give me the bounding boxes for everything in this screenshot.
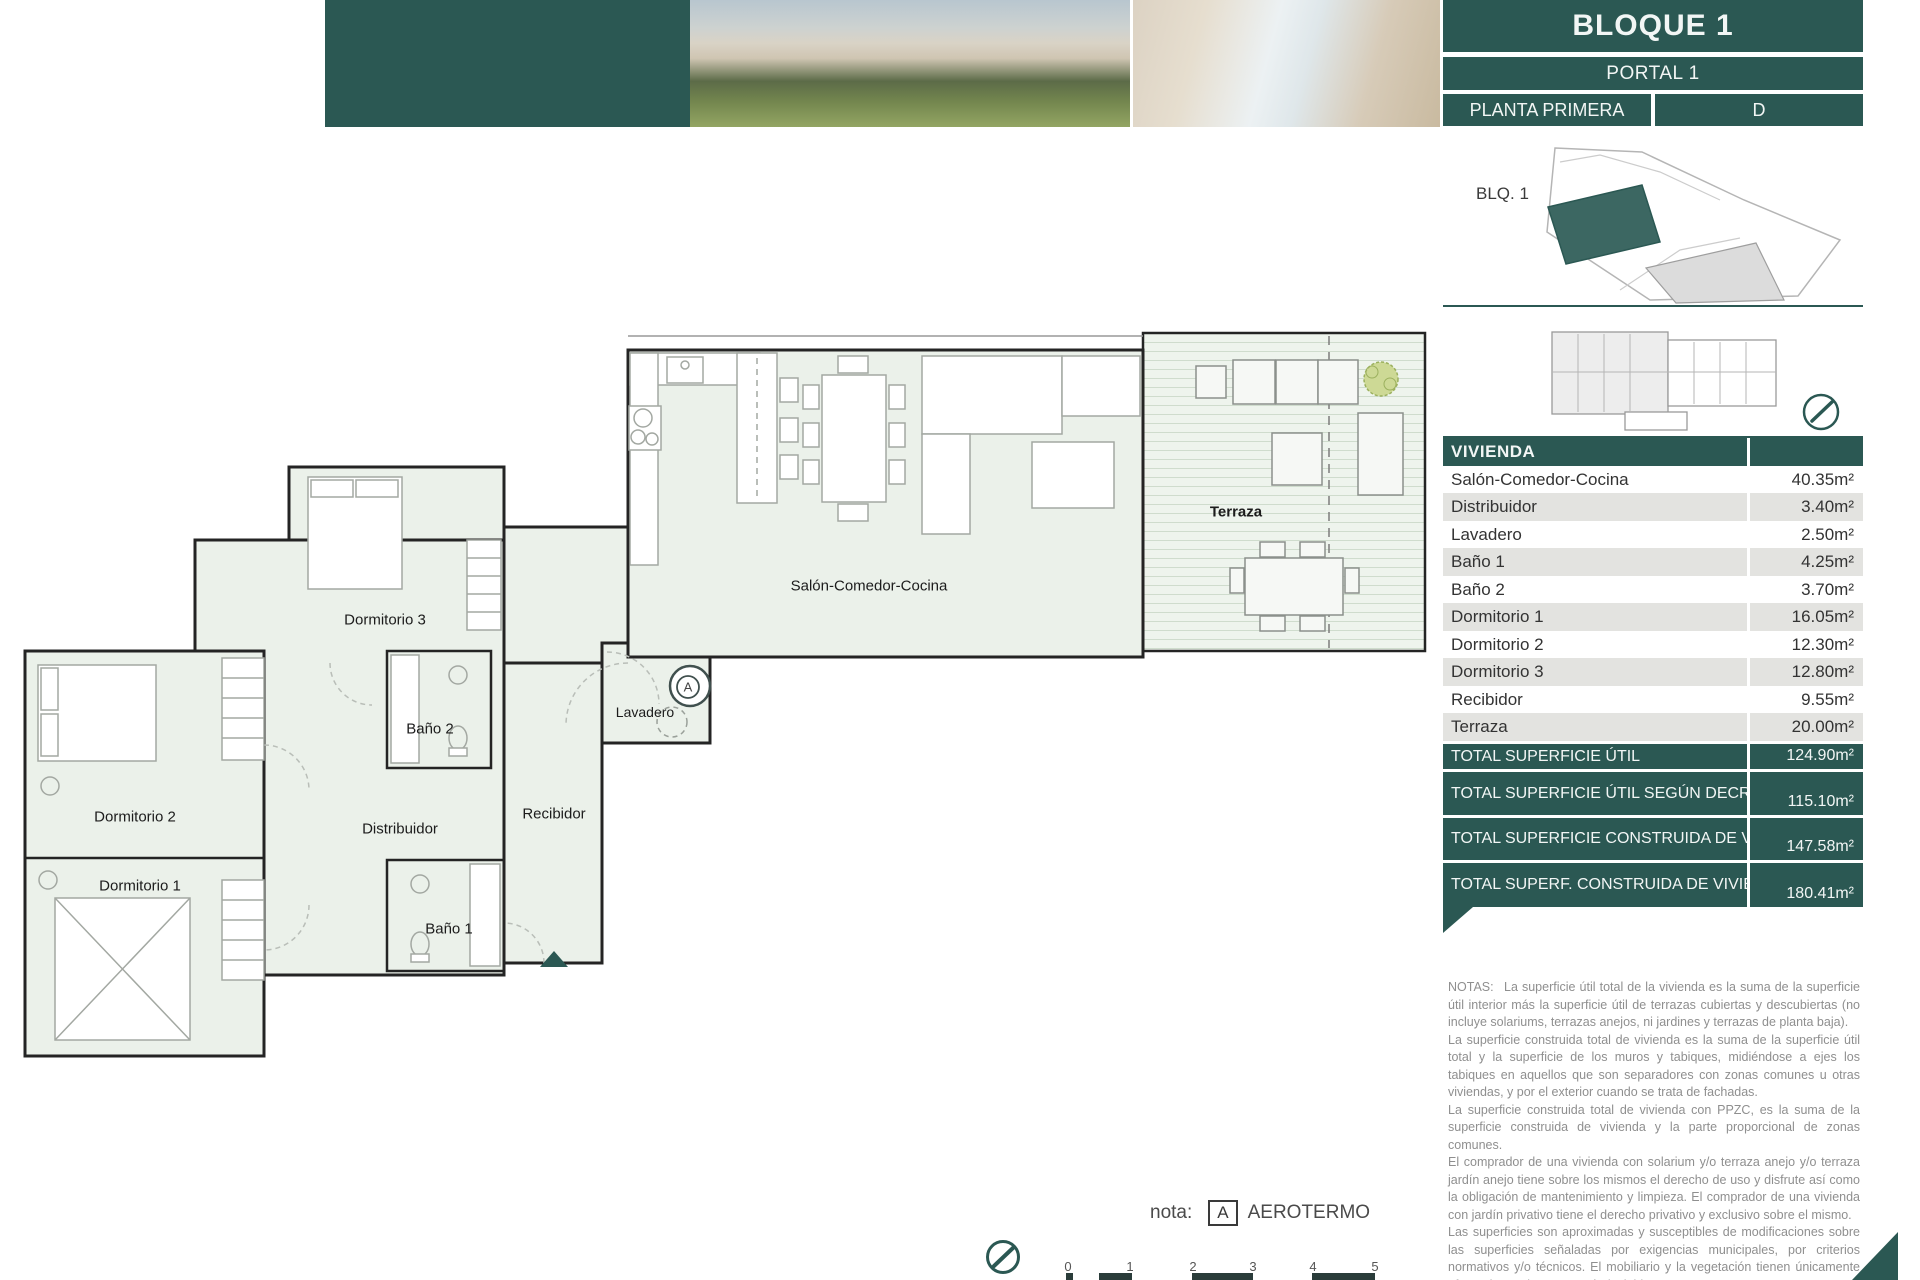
table-row: Baño 23.70m² [1443,576,1863,604]
table-row: Dormitorio 116.05m² [1443,603,1863,631]
aerotermo-note: nota: A AEROTERMO [1150,1200,1370,1226]
notes-label: NOTAS: [1448,979,1504,997]
table-row: Lavadero2.50m² [1443,521,1863,549]
table-row: Dormitorio 212.30m² [1443,631,1863,659]
room-label-salon: Salón-Comedor-Cocina [791,578,948,595]
terrace-plant-icon [1364,362,1398,396]
notes-block: NOTAS:La superficie útil total de la viv… [1448,979,1860,1280]
room-label-dormitorio1: Dormitorio 1 [99,878,181,895]
room-label-dormitorio2: Dormitorio 2 [94,809,176,826]
floorplan-sheet: BLOQUE 1 PORTAL 1 PLANTA PRIMERA D BLQ. … [0,0,1920,1280]
total-row: TOTAL SUPERFICIE ÚTIL SEGÚN DECRETO 218/… [1443,772,1863,815]
room-label-bano2: Baño 2 [406,721,454,738]
key-plan-section [1443,307,1863,438]
room-label-bano1: Baño 1 [425,921,473,938]
portal-subtitle: PORTAL 1 [1443,57,1863,90]
room-label-distribuidor: Distribuidor [362,821,438,838]
table-header-row: VIVIENDA [1443,438,1863,466]
table-row: Distribuidor3.40m² [1443,493,1863,521]
floor-label: PLANTA PRIMERA [1443,94,1651,126]
unit-label: D [1655,94,1863,126]
room-label-dormitorio3: Dormitorio 3 [344,612,426,629]
terrace-furniture [1196,360,1403,631]
site-plan-section [1443,127,1863,307]
block-title: BLOQUE 1 [1443,0,1863,52]
table-row: Dormitorio 312.80m² [1443,658,1863,686]
total-row: TOTAL SUPERFICIE ÚTIL 124.90m² [1443,744,1863,769]
compass-icon [988,1242,1019,1273]
room-label-terraza: Terraza [1210,504,1262,521]
table-fold-triangle [1443,907,1473,933]
table-row: Recibidor9.55m² [1443,686,1863,714]
table-header-label: VIVIENDA [1443,438,1747,466]
note-text: AEROTERMO [1248,1202,1370,1224]
total-row: TOTAL SUPERFICIE CONSTRUIDA DE VIVIENDA … [1443,818,1863,860]
table-row: Terraza20.00m² [1443,713,1863,741]
aerotermo-marker-label: A [684,680,693,695]
table-row: Salón-Comedor-Cocina40.35m² [1443,466,1863,494]
aerotermo-symbol-box: A [1208,1200,1237,1226]
total-row: TOTAL SUPERF. CONSTRUIDA DE VIVIENDA CON… [1443,863,1863,907]
table-row: Baño 14.25m² [1443,548,1863,576]
note-prefix: nota: [1150,1202,1192,1224]
areas-table: VIVIENDA Salón-Comedor-Cocina40.35m² Dis… [1443,438,1863,907]
room-label-recibidor: Recibidor [522,806,585,823]
blq-label: BLQ. 1 [1476,184,1529,204]
room-label-lavadero: Lavadero [616,704,674,720]
